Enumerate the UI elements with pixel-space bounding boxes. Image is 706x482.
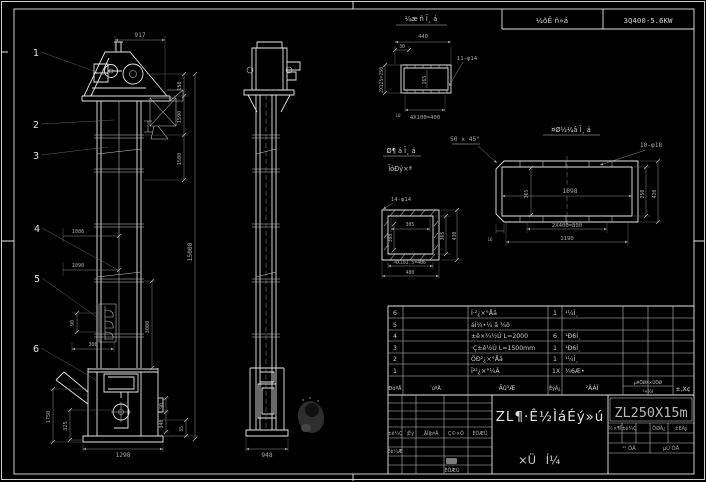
sheet-total: ¹² ÕÅ xyxy=(622,445,636,452)
dim-150: 150 xyxy=(177,81,183,90)
dim-1298: 1298 xyxy=(116,452,131,459)
dim-250: 250 xyxy=(640,190,646,199)
holes-14-14: 14-φ14 xyxy=(391,197,412,203)
bom-row-qty: 1X xyxy=(552,368,561,375)
rev-sign: Ç©×Ö xyxy=(448,430,464,437)
dim-1098: 1098 xyxy=(563,188,578,195)
bom-row-name: Î²²¿×°¼Ä xyxy=(471,366,500,375)
smudge-artifact xyxy=(295,397,327,435)
dim-16: 16 xyxy=(487,237,493,242)
dim-30: 30 xyxy=(399,44,405,50)
bom-row-name: áÍ¼•¼ ã ¼ô xyxy=(471,320,510,329)
dim-1590: 1590 xyxy=(177,111,183,124)
stage-4: ±ÈÀý xyxy=(675,424,688,432)
dim-420: 420 xyxy=(652,190,658,199)
sig-label: Éè¼Æ xyxy=(387,447,403,455)
bom-row-ser: 6 xyxy=(393,310,397,317)
bom-header-rem: ±,X¢ xyxy=(675,386,690,393)
dim-4x101: 4X101.5=406 xyxy=(394,260,426,266)
dim-90: 90 xyxy=(70,320,76,326)
bom-row-name: ÖÐ²¿×°Åä xyxy=(471,354,503,363)
dim-365c: 365 xyxy=(524,190,530,199)
dim-305: 305 xyxy=(406,222,415,228)
bom-row-name: ·Ç±ê½Ú L=1500mm xyxy=(471,343,535,352)
drawing-model: ZL250X15m xyxy=(614,405,687,421)
detail-casing-side: ¤Ø½¼â Ī¸ á 50 x 45° 10-φ18 1098 365 2X40… xyxy=(450,125,662,246)
bom-header-name: Ãû³Æ xyxy=(499,383,516,392)
dim-15000: 15000 xyxy=(187,242,194,261)
bom-row-mat: ¹¼Í¸ xyxy=(565,354,578,363)
bom-row-ser: 3 xyxy=(393,345,397,352)
bom-header-wt2: ¹«½ï xyxy=(643,388,655,395)
bom-header-qty: ÊýÁ¿ xyxy=(549,384,561,392)
stage-2: ±ê¼Ç xyxy=(622,425,638,432)
stage-3: ÖØÁ¿ xyxy=(652,425,666,432)
dim-300: 300 xyxy=(88,342,97,348)
balloon-5: 5 xyxy=(34,274,40,285)
dim-325: 325 xyxy=(63,421,69,430)
sheet-num: µÚ ÕÅ xyxy=(663,445,680,452)
side-view: 948 xyxy=(244,42,300,459)
balloon-4: 4 xyxy=(34,224,40,235)
dim-265: 265 xyxy=(422,76,428,85)
bom-row-name: Í·²¿×°Åä xyxy=(471,308,497,317)
drawing-type-2: Í¼ xyxy=(546,452,561,467)
header-strip: ¼õÊ ñ»á 3Q400-5.6KW xyxy=(502,9,694,29)
rev-count: ´¦Êý xyxy=(404,429,414,437)
dim-4x100: 4X100=400 xyxy=(410,115,440,121)
detail-top-title: ¼æ ñ Ī¸ á xyxy=(405,14,438,23)
dim-10: 10 xyxy=(395,113,401,118)
date-label: ÈÕÆÚ xyxy=(445,466,460,474)
bom-row-name: ±ê×¼½Ú L=2000 xyxy=(471,331,528,340)
flange-title-1: Ø¶ á Ī¸ á xyxy=(387,146,416,155)
dim-3000: 3000 xyxy=(145,321,151,334)
bom-header-code: ´úºÅ xyxy=(429,385,441,392)
balloon-3: 3 xyxy=(33,151,39,162)
rev-date: ÈÕÆÚ xyxy=(473,429,488,437)
bom-row-qty: 6 xyxy=(553,333,557,340)
bom-row-qty: 1 xyxy=(553,345,557,352)
motor-spec: 3Q400-5.6KW xyxy=(624,16,673,25)
cad-viewport: ¼õÊ ñ»á 3Q400-5.6KW 917 150 1590 1500 15… xyxy=(0,0,706,482)
bom-table: 6 Í·²¿×°Åä 1 ¹¼Í¸ 5 áÍ¼•¼ ã ¼ô 4 ±ê×¼½Ú … xyxy=(388,306,694,474)
bom-row-mat: ¼6Æ• xyxy=(565,368,585,375)
dim-430: 430 xyxy=(452,232,458,241)
drawing-title: ZL¶·Ê½ÌáÉý»ú xyxy=(496,407,605,425)
bom-row-ser: 1 xyxy=(393,368,397,375)
detail-square-flange: Ø¶ á Ī¸ á ĪóÐý×ª 14-φ14 305 308 365 430 … xyxy=(382,146,462,279)
flange-title-2: ĪóÐý×ª xyxy=(388,164,412,173)
balloon-2: 2 xyxy=(33,120,39,131)
bom-row-mat: ¹Ð6Í¸ xyxy=(565,343,581,352)
dim-917: 917 xyxy=(134,32,145,39)
bom-row-qty: 1 xyxy=(553,356,557,363)
bom-row-qty: 1 xyxy=(553,310,557,317)
dim-308: 308 xyxy=(388,234,394,243)
detail-discharge-flange: ¼æ ñ Ī¸ á 440 30 2X125=250 265 11-φ14 4X… xyxy=(379,14,478,121)
dim-1086: 1086 xyxy=(72,229,85,235)
dim-90b: 90 xyxy=(159,403,165,409)
cad-canvas: ¼õÊ ñ»á 3Q400-5.6KW 917 150 1590 1500 15… xyxy=(0,0,706,482)
balloon-1: 1 xyxy=(33,48,39,59)
dim-35: 35 xyxy=(179,426,185,432)
bom-header-mat: ²ÄÁÏ xyxy=(586,383,599,392)
dim-1750: 1750 xyxy=(46,411,52,424)
dim-948: 948 xyxy=(261,452,272,459)
dim-1190: 1190 xyxy=(560,236,573,242)
casing-title: ¤Ø½¼â Ī¸ á xyxy=(551,125,591,134)
dim-365f: 365 xyxy=(440,232,446,241)
bom-header-wt1: µ¥ÖØX×ÜÖØ xyxy=(634,380,663,385)
holes-10-18: 10-φ18 xyxy=(640,142,663,149)
dim-440: 440 xyxy=(418,34,428,40)
front-view xyxy=(56,42,183,442)
dim-480: 480 xyxy=(406,270,415,276)
holes-11-14: 11-φ14 xyxy=(457,56,478,62)
bom-row-ser: 5 xyxy=(393,322,397,329)
chamfer-note: 50 x 45° xyxy=(450,135,480,143)
signature-stamp xyxy=(446,458,457,464)
dim-340: 340 xyxy=(159,420,165,429)
balloon-6: 6 xyxy=(33,344,39,355)
bom-row-ser: 2 xyxy=(393,356,397,363)
rev-file: ¸ÄÎļþºÅ xyxy=(421,430,439,437)
bom-row-mat: ¹¼Í¸ xyxy=(565,308,578,317)
dim-2x125: 2X125=250 xyxy=(379,67,385,93)
dim-2x400: 2X400=800 xyxy=(552,223,582,229)
dim-1090: 1090 xyxy=(72,263,85,269)
bom-header-ser: ÐòºÅ xyxy=(388,385,402,392)
drawing-type-1: ×Ü xyxy=(518,451,536,467)
title-block: ZL¶·Ê½ÌáÉý»ú ZL250X15m ×Ü Í¼ ±ê¼Ç ´¦Êý ¸… xyxy=(387,395,694,474)
stage-1: ½×¶Î xyxy=(608,425,622,432)
bom-row-ser: 4 xyxy=(393,333,397,340)
bom-row-mat: ¹Ð6Í¸ xyxy=(565,331,581,340)
dim-1500: 1500 xyxy=(177,153,183,166)
rev-mark: ±ê¼Ç xyxy=(388,430,404,437)
gearbox-label: ¼õÊ ñ»á xyxy=(536,16,568,25)
